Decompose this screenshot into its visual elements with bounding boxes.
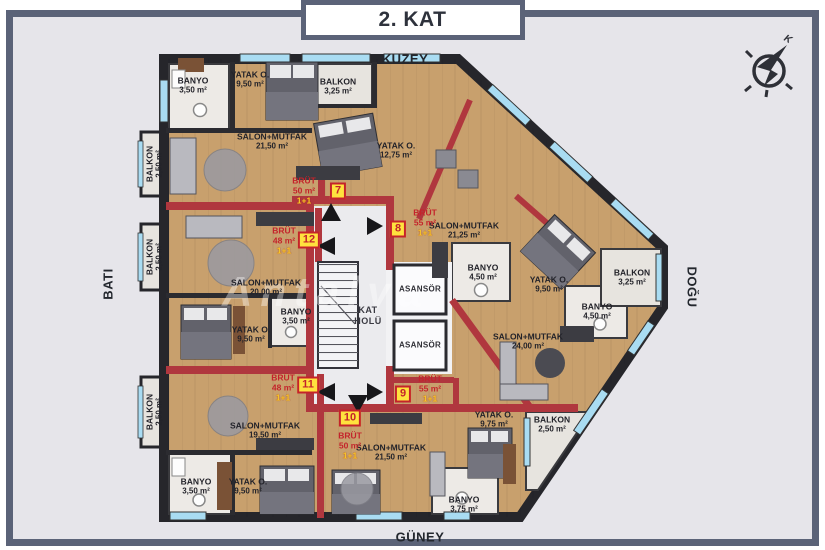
unit-8-info: BRÜT55 m²1+1 xyxy=(413,208,437,239)
kitchen-counter xyxy=(256,438,314,450)
toilet xyxy=(194,104,207,117)
kitchen-counter xyxy=(256,212,314,226)
room-label-banyo: BANYO3,50 m² xyxy=(281,306,312,325)
unit-10-number: 10 xyxy=(339,410,361,427)
bed xyxy=(181,305,231,359)
rug xyxy=(341,473,373,505)
room-label-banyo: BANYO4,50 m² xyxy=(582,301,613,320)
bed xyxy=(266,62,318,120)
compass-north-icon xyxy=(745,45,792,97)
room-label-yatak: YATAK O.9,50 m² xyxy=(232,324,271,343)
toilet xyxy=(193,494,205,506)
unit-7-number: 7 xyxy=(330,183,346,200)
sofa xyxy=(430,452,445,496)
room-label-yatak: YATAK O.9,50 m² xyxy=(231,69,270,88)
unit-10-info: BRÜT50 m²1+1 xyxy=(338,431,362,462)
kitchen-counter xyxy=(370,413,422,424)
unit-8-number: 8 xyxy=(390,221,406,238)
floor-plan-drawing xyxy=(0,0,825,550)
kitchen-counter xyxy=(560,326,594,342)
elevator-label: ASANSÖR xyxy=(399,341,441,350)
direction-west: BATI xyxy=(101,268,116,299)
room-label-salon: SALON+MUTFAK19,50 m² xyxy=(230,420,300,439)
toilet xyxy=(475,284,488,297)
room-label-yatak: YATAK O.12,75 m² xyxy=(377,140,416,159)
wardrobe xyxy=(503,444,516,484)
round-table xyxy=(535,348,565,378)
room-label-balkon: BALKON3,25 m² xyxy=(614,267,650,286)
unit-12-number: 12 xyxy=(298,232,320,249)
room-label-banyo: BANYO3,75 m² xyxy=(449,494,480,513)
armchair xyxy=(458,170,478,188)
room-label-balkon: BALKON2,50 m² xyxy=(534,414,570,433)
room-label-banyo: BANYO3,50 m² xyxy=(181,476,212,495)
toilet xyxy=(286,327,297,338)
floor-title: 2. KAT xyxy=(301,0,525,40)
unit-9-info: BRÜT55 m²1+1 xyxy=(418,374,442,405)
kitchen-counter xyxy=(432,242,448,278)
room-label-balkon: BALKON2,50 m² xyxy=(144,146,163,182)
room-label-yatak: YATAK O.9,75 m² xyxy=(475,409,514,428)
unit-11-info: BRÜT48 m²1+1 xyxy=(271,373,295,404)
floor-plan-page: 2. KAT KUZEY GÜNEY BATI DOĞU K Antalya B… xyxy=(0,0,825,550)
unit-7-info: BRÜT50 m²1+1 xyxy=(292,176,316,207)
elevator-label: ASANSÖR xyxy=(399,285,441,294)
room-label-yatak: YATAK O.9,50 m² xyxy=(229,476,268,495)
room-label-balkon: BALKON2,50 m² xyxy=(144,394,163,430)
room-label-banyo: BANYO4,50 m² xyxy=(468,262,499,281)
sink xyxy=(172,458,185,476)
direction-north: KUZEY xyxy=(382,52,429,67)
sofa xyxy=(186,216,242,238)
armchair xyxy=(436,150,456,168)
room-label-salon: SALON+MUTFAK21,25 m² xyxy=(429,220,499,239)
staircase xyxy=(318,262,358,368)
room-label-balkon: BALKON2,50 m² xyxy=(144,239,163,275)
sofa xyxy=(500,384,548,400)
direction-east: DOĞU xyxy=(685,267,700,308)
room-label-salon: SALON+MUTFAK24,00 m² xyxy=(493,331,563,350)
room-label-salon: SALON+MUTFAK21,50 m² xyxy=(237,131,307,150)
hall-label: KATHOLÜ xyxy=(354,305,382,328)
unit-9-number: 9 xyxy=(395,386,411,403)
rug xyxy=(204,149,246,191)
room-label-salon: SALON+MUTFAK21,50 m² xyxy=(356,442,426,461)
unit-12-info: BRÜT48 m²1+1 xyxy=(272,226,296,257)
unit-11-number: 11 xyxy=(297,377,319,394)
room-label-yatak: YATAK O.9,50 m² xyxy=(530,274,569,293)
bed xyxy=(260,466,314,514)
room-label-balkon: BALKON3,25 m² xyxy=(320,76,356,95)
direction-south: GÜNEY xyxy=(396,530,445,545)
room-label-salon: SALON+MUTFAK20,00 m² xyxy=(231,277,301,296)
room-label-banyo: BANYO3,50 m² xyxy=(178,75,209,94)
floor-title-text: 2. KAT xyxy=(379,8,447,32)
sofa xyxy=(170,138,196,194)
